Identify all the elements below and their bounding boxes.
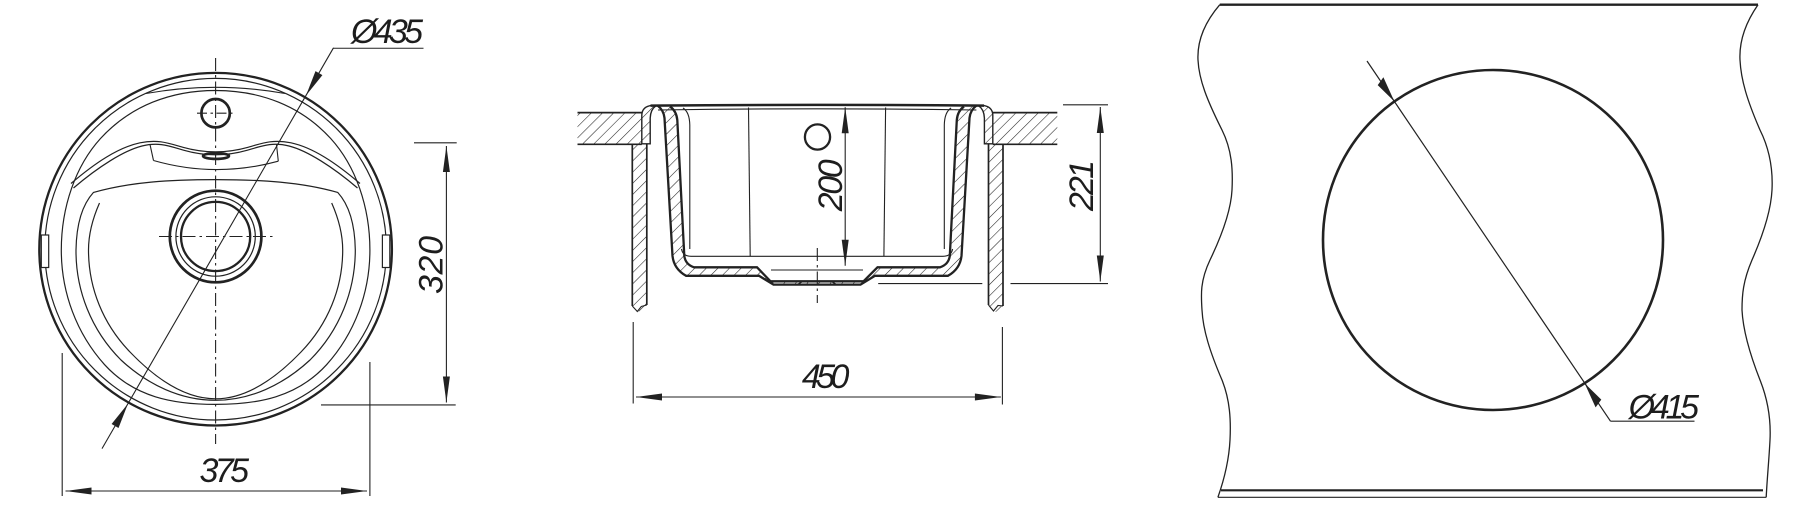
svg-text:200: 200 — [812, 159, 850, 212]
svg-text:320: 320 — [413, 236, 451, 294]
svg-text:375: 375 — [200, 452, 250, 490]
svg-text:450: 450 — [802, 358, 850, 396]
svg-text:Ø435: Ø435 — [350, 13, 423, 51]
svg-text:Ø415: Ø415 — [1628, 388, 1700, 426]
svg-text:221: 221 — [1063, 160, 1101, 212]
